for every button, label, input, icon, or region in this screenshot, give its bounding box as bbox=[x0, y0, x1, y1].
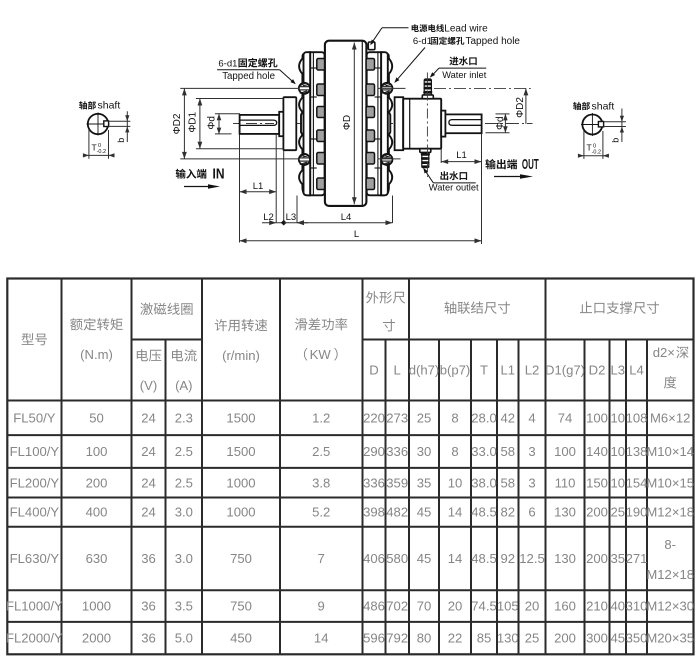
svg-text:702: 702 bbox=[386, 599, 408, 614]
svg-text:Φd: Φd bbox=[495, 116, 506, 130]
svg-text:48.5: 48.5 bbox=[471, 505, 496, 520]
svg-text:shaft: shaft bbox=[592, 100, 615, 112]
svg-text:b: b bbox=[116, 138, 126, 143]
svg-text:ΦD2: ΦD2 bbox=[172, 113, 183, 134]
svg-text:L1: L1 bbox=[501, 362, 516, 377]
svg-text:12.5: 12.5 bbox=[519, 551, 544, 566]
svg-text:M10×14: M10×14 bbox=[646, 444, 694, 459]
svg-text:220: 220 bbox=[363, 410, 385, 425]
svg-text:1500: 1500 bbox=[226, 444, 255, 459]
svg-text:36: 36 bbox=[141, 631, 156, 646]
svg-text:140: 140 bbox=[586, 444, 608, 459]
svg-text:8: 8 bbox=[451, 410, 458, 425]
svg-text:190: 190 bbox=[626, 505, 648, 520]
svg-text:(r/min): (r/min) bbox=[222, 348, 260, 363]
svg-text:M6×12: M6×12 bbox=[650, 410, 690, 425]
svg-text:110: 110 bbox=[555, 475, 576, 490]
svg-text:3.0: 3.0 bbox=[175, 551, 193, 566]
svg-text:14: 14 bbox=[448, 551, 463, 566]
svg-text:750: 750 bbox=[230, 599, 252, 614]
svg-text:M12×18: M12×18 bbox=[646, 505, 694, 520]
svg-text:154: 154 bbox=[626, 475, 648, 490]
svg-text:3.5: 3.5 bbox=[175, 599, 193, 614]
svg-text:45: 45 bbox=[611, 631, 626, 646]
svg-text:200: 200 bbox=[586, 505, 608, 520]
svg-text:138: 138 bbox=[626, 444, 648, 459]
svg-text:20: 20 bbox=[525, 599, 540, 614]
svg-text:(V): (V) bbox=[140, 378, 157, 393]
svg-text:8-: 8- bbox=[664, 537, 676, 552]
svg-text:74: 74 bbox=[558, 410, 573, 425]
svg-text:Φd: Φd bbox=[206, 116, 217, 130]
svg-text:40: 40 bbox=[611, 599, 626, 614]
svg-text:3: 3 bbox=[528, 475, 535, 490]
svg-text:80: 80 bbox=[417, 631, 432, 646]
svg-text:T: T bbox=[480, 362, 488, 377]
svg-text:L2: L2 bbox=[525, 362, 540, 377]
svg-text:580: 580 bbox=[386, 551, 408, 566]
svg-text:D1(g7): D1(g7) bbox=[545, 362, 585, 377]
svg-text:ΦD1: ΦD1 bbox=[187, 111, 198, 132]
svg-text:L2: L2 bbox=[263, 212, 274, 223]
svg-text:4: 4 bbox=[528, 410, 535, 425]
svg-text:3.0: 3.0 bbox=[175, 505, 193, 520]
svg-text:70: 70 bbox=[417, 599, 432, 614]
svg-text:58: 58 bbox=[501, 475, 516, 490]
svg-text:FL2000/Y: FL2000/Y bbox=[6, 631, 63, 646]
svg-text:486: 486 bbox=[363, 599, 385, 614]
svg-text:Water inlet: Water inlet bbox=[442, 70, 487, 80]
svg-text:2.5: 2.5 bbox=[175, 475, 193, 490]
svg-text:398: 398 bbox=[363, 505, 385, 520]
svg-text:42: 42 bbox=[501, 410, 516, 425]
svg-text:b(p7): b(p7) bbox=[440, 362, 471, 377]
svg-text:14: 14 bbox=[314, 631, 329, 646]
svg-text:271: 271 bbox=[626, 551, 648, 566]
svg-text:-0.2: -0.2 bbox=[592, 150, 601, 156]
svg-text:d2×: d2× bbox=[653, 345, 675, 360]
svg-text:1.2: 1.2 bbox=[312, 410, 330, 425]
svg-text:24: 24 bbox=[141, 410, 156, 425]
svg-text:310: 310 bbox=[626, 599, 648, 614]
svg-text:5.2: 5.2 bbox=[312, 505, 330, 520]
svg-text:450: 450 bbox=[230, 631, 252, 646]
svg-text:10: 10 bbox=[611, 410, 626, 425]
svg-text:L3: L3 bbox=[286, 212, 297, 223]
svg-text:100: 100 bbox=[86, 444, 108, 459]
svg-text:130: 130 bbox=[497, 631, 519, 646]
svg-text:OUT: OUT bbox=[522, 156, 539, 173]
svg-text:ΦD2: ΦD2 bbox=[515, 97, 526, 118]
svg-text:108: 108 bbox=[626, 410, 648, 425]
svg-text:130: 130 bbox=[554, 505, 576, 520]
svg-text:82: 82 bbox=[501, 505, 516, 520]
svg-text:160: 160 bbox=[554, 599, 576, 614]
svg-text:2000: 2000 bbox=[82, 631, 111, 646]
svg-text:130: 130 bbox=[554, 551, 576, 566]
svg-text:(N.m): (N.m) bbox=[80, 347, 113, 362]
svg-text:Water outlet: Water outlet bbox=[429, 182, 479, 192]
svg-text:L4: L4 bbox=[341, 212, 352, 223]
svg-text:6-d1: 6-d1 bbox=[218, 59, 237, 70]
svg-text:750: 750 bbox=[230, 551, 252, 566]
svg-text:M10×15: M10×15 bbox=[646, 475, 694, 490]
svg-text:45: 45 bbox=[417, 505, 432, 520]
svg-text:100: 100 bbox=[586, 410, 608, 425]
svg-text:30: 30 bbox=[417, 444, 432, 459]
svg-text:b: b bbox=[611, 138, 621, 143]
svg-text:105: 105 bbox=[497, 599, 519, 614]
svg-text:300: 300 bbox=[586, 631, 608, 646]
svg-text:D2: D2 bbox=[589, 362, 606, 377]
svg-text:d(h7): d(h7) bbox=[409, 362, 440, 377]
svg-text:Tapped hole: Tapped hole bbox=[466, 36, 521, 47]
svg-text:2.3: 2.3 bbox=[175, 410, 193, 425]
svg-text:482: 482 bbox=[386, 505, 408, 520]
svg-text:85: 85 bbox=[477, 631, 492, 646]
svg-text:0: 0 bbox=[98, 143, 101, 149]
svg-text:Tapped hole: Tapped hole bbox=[222, 71, 275, 82]
svg-text:36: 36 bbox=[141, 599, 156, 614]
svg-text:FL200/Y: FL200/Y bbox=[10, 475, 60, 490]
svg-text:FL50/Y: FL50/Y bbox=[13, 410, 55, 425]
svg-text:10: 10 bbox=[611, 475, 626, 490]
svg-text:50: 50 bbox=[89, 410, 104, 425]
svg-text:2.5: 2.5 bbox=[175, 444, 193, 459]
svg-text:10: 10 bbox=[448, 475, 463, 490]
svg-text:7: 7 bbox=[318, 551, 325, 566]
svg-text:L: L bbox=[394, 362, 401, 377]
svg-text:ΦD: ΦD bbox=[342, 115, 353, 130]
svg-text:L1: L1 bbox=[456, 150, 467, 161]
svg-text:L4: L4 bbox=[629, 362, 644, 377]
svg-text:10: 10 bbox=[611, 444, 626, 459]
svg-text:359: 359 bbox=[386, 475, 408, 490]
svg-text:28.0: 28.0 bbox=[471, 410, 496, 425]
svg-text:22: 22 bbox=[448, 631, 463, 646]
svg-text:L1: L1 bbox=[253, 181, 264, 192]
svg-text:336: 336 bbox=[363, 475, 385, 490]
svg-text:33.0: 33.0 bbox=[471, 444, 496, 459]
svg-text:25: 25 bbox=[611, 505, 626, 520]
svg-text:shaft: shaft bbox=[98, 100, 121, 112]
svg-text:200: 200 bbox=[554, 631, 576, 646]
svg-text:210: 210 bbox=[586, 599, 608, 614]
svg-text:45: 45 bbox=[417, 551, 432, 566]
svg-text:25: 25 bbox=[525, 631, 540, 646]
svg-text:38.0: 38.0 bbox=[471, 475, 496, 490]
svg-text:9: 9 bbox=[318, 599, 325, 614]
svg-text:20: 20 bbox=[448, 599, 463, 614]
svg-text:792: 792 bbox=[386, 631, 408, 646]
svg-text:FL1000/Y: FL1000/Y bbox=[6, 599, 63, 614]
svg-text:273: 273 bbox=[386, 410, 408, 425]
svg-text:M12×18: M12×18 bbox=[646, 567, 694, 582]
svg-text:1000: 1000 bbox=[226, 475, 255, 490]
svg-text:6: 6 bbox=[528, 505, 535, 520]
svg-text:1000: 1000 bbox=[82, 599, 111, 614]
svg-text:3.8: 3.8 bbox=[312, 475, 330, 490]
svg-text:M12×30: M12×30 bbox=[646, 599, 694, 614]
svg-text:IN: IN bbox=[213, 166, 225, 183]
svg-text:0: 0 bbox=[593, 143, 596, 149]
svg-text:L: L bbox=[354, 229, 359, 240]
svg-text:400: 400 bbox=[86, 505, 108, 520]
svg-text:1000: 1000 bbox=[226, 505, 255, 520]
svg-text:3: 3 bbox=[528, 444, 535, 459]
svg-text:24: 24 bbox=[141, 475, 156, 490]
svg-text:5.0: 5.0 bbox=[175, 631, 193, 646]
svg-text:336: 336 bbox=[386, 444, 408, 459]
svg-text:L3: L3 bbox=[611, 362, 626, 377]
svg-text:35: 35 bbox=[417, 475, 432, 490]
svg-text:74.5: 74.5 bbox=[471, 599, 496, 614]
svg-text:150: 150 bbox=[586, 475, 608, 490]
svg-text:24: 24 bbox=[141, 505, 156, 520]
svg-text:FL630/Y: FL630/Y bbox=[10, 551, 60, 566]
svg-text:48.5: 48.5 bbox=[471, 551, 496, 566]
svg-text:FL400/Y: FL400/Y bbox=[10, 505, 60, 520]
svg-text:2.5: 2.5 bbox=[312, 444, 330, 459]
svg-text:D: D bbox=[369, 362, 378, 377]
svg-text:KW: KW bbox=[310, 347, 332, 362]
svg-text:36: 36 bbox=[141, 551, 156, 566]
svg-text:FL100/Y: FL100/Y bbox=[10, 444, 60, 459]
svg-text:596: 596 bbox=[363, 631, 385, 646]
svg-text:Lead wire: Lead wire bbox=[444, 23, 488, 34]
svg-text:630: 630 bbox=[86, 551, 108, 566]
svg-text:200: 200 bbox=[86, 475, 108, 490]
svg-text:8: 8 bbox=[451, 444, 458, 459]
svg-text:M20×35: M20×35 bbox=[646, 631, 694, 646]
svg-text:1500: 1500 bbox=[226, 410, 255, 425]
svg-text:350: 350 bbox=[626, 631, 648, 646]
svg-text:25: 25 bbox=[417, 410, 432, 425]
svg-text:(A): (A) bbox=[175, 378, 192, 393]
svg-text:-0.2: -0.2 bbox=[97, 149, 106, 155]
svg-text:290: 290 bbox=[363, 444, 385, 459]
svg-text:14: 14 bbox=[448, 505, 463, 520]
svg-text:24: 24 bbox=[141, 444, 156, 459]
svg-text:58: 58 bbox=[501, 444, 516, 459]
svg-text:406: 406 bbox=[363, 551, 385, 566]
svg-text:92: 92 bbox=[501, 551, 516, 566]
svg-text:35: 35 bbox=[611, 551, 626, 566]
svg-text:6-d1: 6-d1 bbox=[413, 36, 432, 47]
svg-text:100: 100 bbox=[554, 444, 576, 459]
svg-text:200: 200 bbox=[586, 551, 608, 566]
